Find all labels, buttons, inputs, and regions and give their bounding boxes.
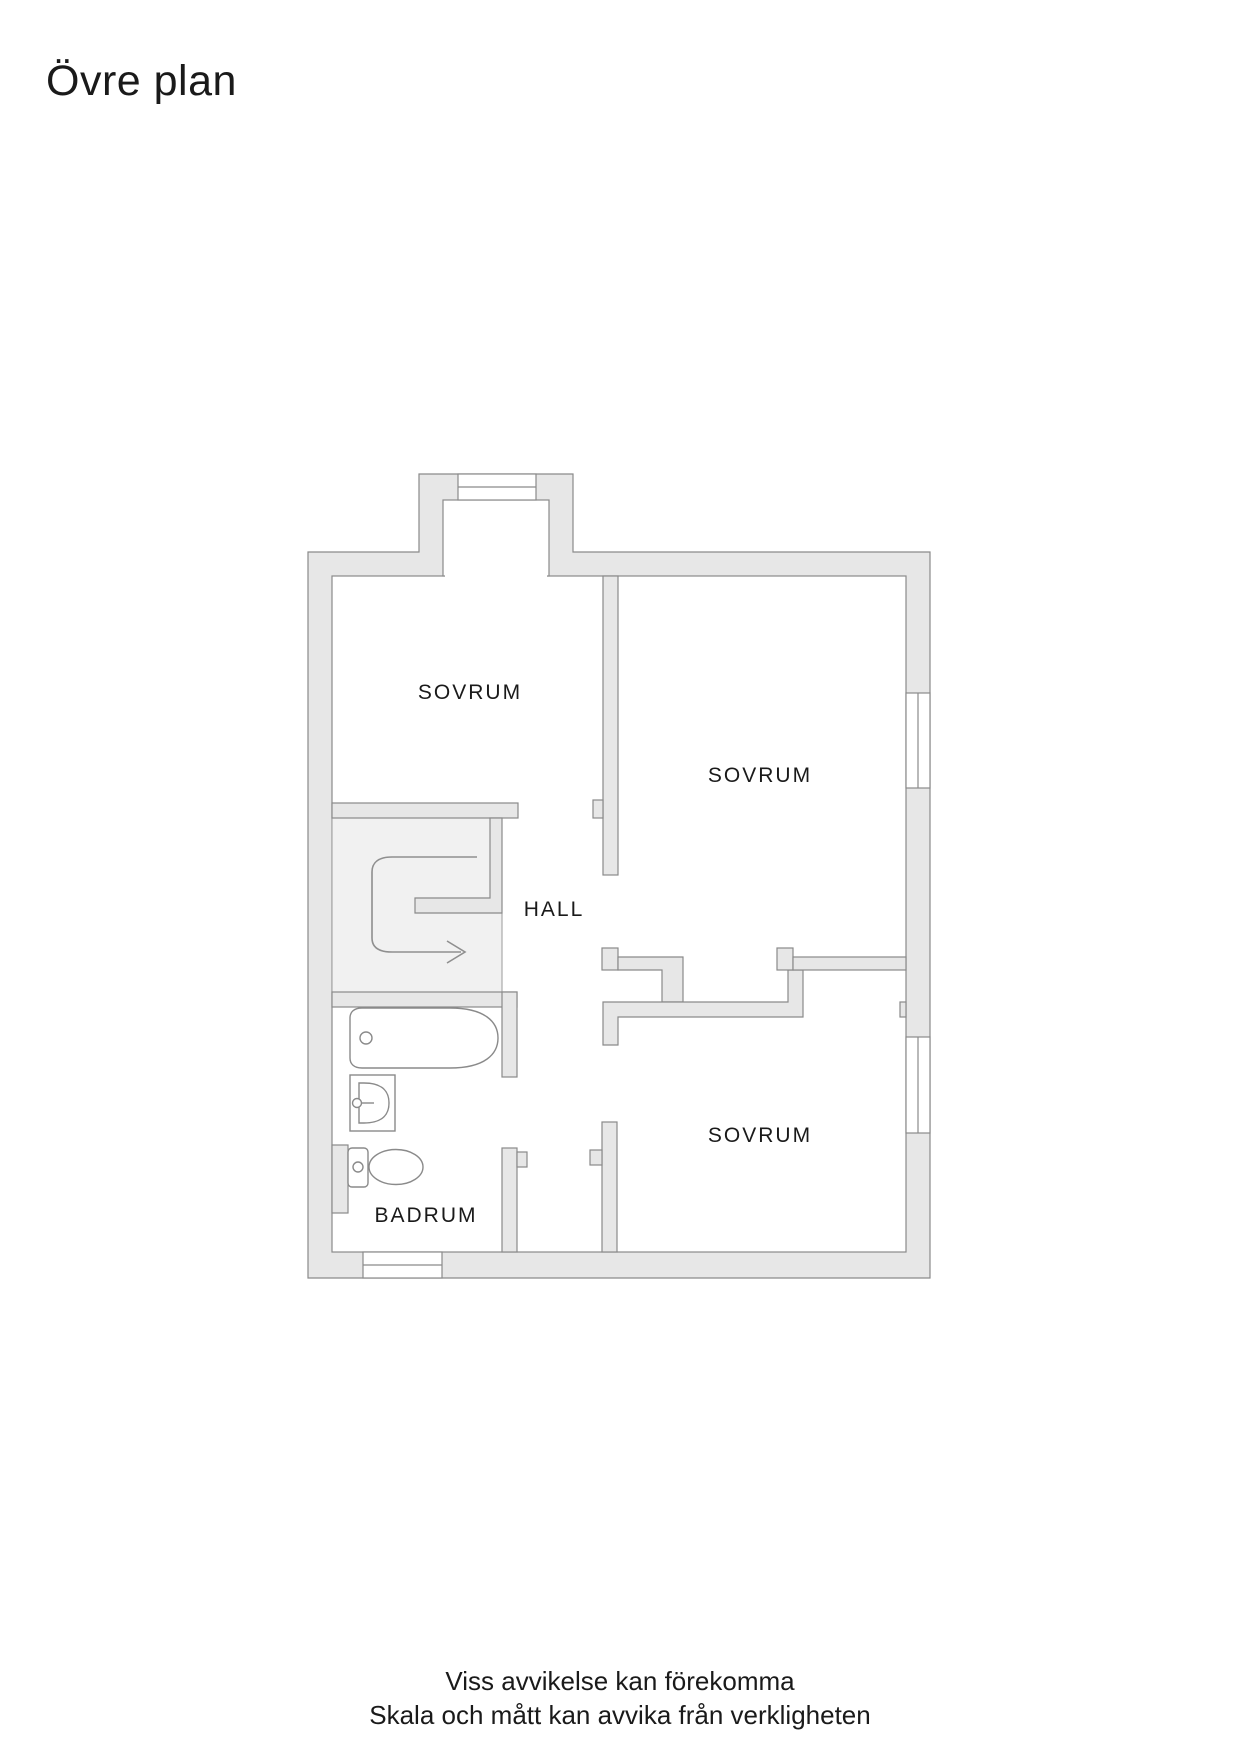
disclaimer-line-1: Viss avvikelse kan förekomma [445, 1666, 795, 1696]
toilet-icon [348, 1148, 423, 1187]
dormer-nook-floor [443, 500, 549, 576]
window-icon [363, 1252, 442, 1278]
wall-hall-closet-east [793, 957, 906, 970]
wall-bath-east-lower [502, 1148, 517, 1252]
sink-icon [350, 1075, 395, 1131]
wall-corridor-east [602, 1122, 617, 1252]
wall-pilaster-toilet [332, 1145, 348, 1213]
floorplan-page: Övre plan [0, 0, 1240, 1754]
door-jamb [590, 1150, 602, 1165]
door-jamb [602, 948, 618, 970]
door-jamb [593, 800, 603, 818]
room-label-sovrum-top-left: SOVRUM [418, 681, 522, 704]
room-label-badrum: BADRUM [374, 1204, 477, 1227]
nook-seam-eraser [445, 571, 547, 580]
wall-bath-east-upper [502, 992, 517, 1077]
door-jamb [517, 1152, 527, 1167]
floorplan-drawing: Övre plan [0, 0, 1240, 1754]
room-label-hall: HALL [524, 898, 585, 921]
bathtub-icon [350, 1008, 498, 1068]
window-icon [906, 1037, 930, 1133]
wall-stair-bath [332, 992, 517, 1007]
door-jamb [777, 948, 793, 970]
page-title: Övre plan [46, 57, 237, 105]
room-label-sovrum-bottom: SOVRUM [708, 1124, 812, 1147]
door-jamb [900, 1002, 906, 1017]
wall-divider-top-rooms [603, 576, 618, 875]
window-icon [906, 693, 930, 788]
window-icon [458, 474, 536, 500]
wall-bedroom1-south [332, 803, 518, 818]
room-label-sovrum-right: SOVRUM [708, 764, 812, 787]
disclaimer-line-2: Skala och mått kan avvika från verklighe… [369, 1700, 870, 1730]
